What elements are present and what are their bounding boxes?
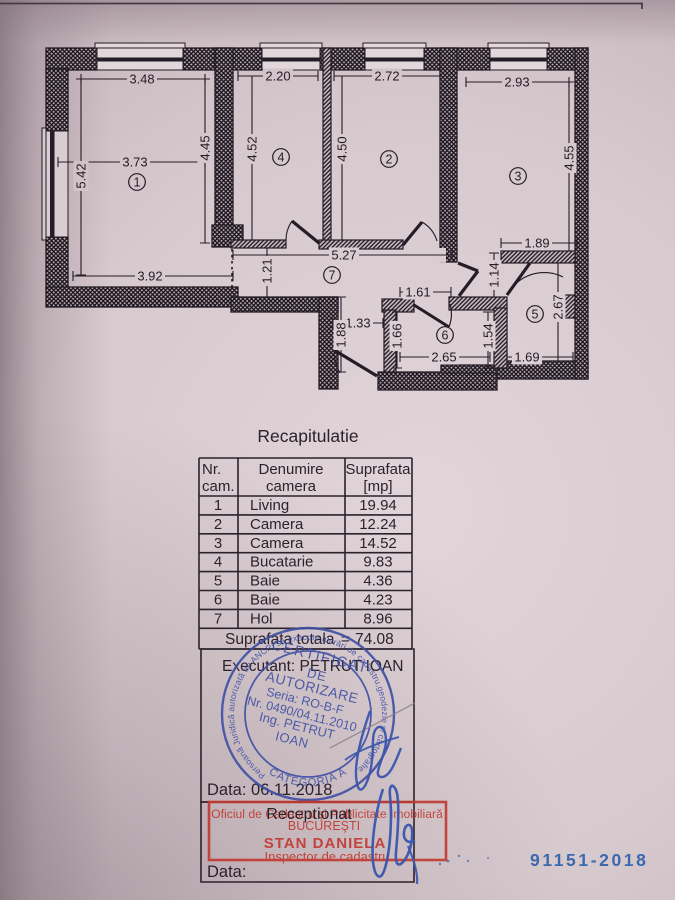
svg-text:3.48: 3.48 (129, 72, 154, 87)
svg-text:5.42: 5.42 (74, 163, 89, 188)
svg-text:4.45: 4.45 (198, 135, 213, 160)
svg-text:4.55: 4.55 (562, 145, 577, 170)
svg-text:1.54: 1.54 (481, 323, 496, 348)
svg-text:4.23: 4.23 (363, 592, 392, 609)
svg-text:12.24: 12.24 (359, 516, 397, 533)
svg-text:3: 3 (214, 535, 222, 552)
svg-text:1.21: 1.21 (260, 258, 275, 283)
svg-text:5: 5 (532, 307, 539, 321)
svg-text:19.94: 19.94 (359, 497, 397, 514)
svg-text:7: 7 (329, 268, 336, 282)
svg-text:3: 3 (515, 169, 522, 183)
svg-text:4: 4 (214, 554, 222, 571)
svg-text:2.72: 2.72 (374, 69, 399, 84)
svg-text:6: 6 (214, 592, 222, 609)
svg-text:Baie: Baie (250, 592, 280, 609)
svg-text:2: 2 (214, 516, 222, 533)
svg-text:6: 6 (442, 328, 449, 342)
svg-text:1.66: 1.66 (390, 323, 405, 348)
svg-text:1: 1 (214, 497, 222, 514)
svg-text:3.92: 3.92 (137, 269, 162, 284)
svg-text:Nr.: Nr. (202, 461, 221, 478)
svg-text:3.73: 3.73 (122, 155, 147, 170)
svg-text:Receptionat: Receptionat (266, 806, 352, 823)
svg-text:5: 5 (214, 573, 222, 590)
svg-text:Denumire: Denumire (258, 461, 323, 478)
svg-text:1: 1 (134, 175, 141, 189)
svg-text:Camera: Camera (250, 516, 304, 533)
svg-text:2.67: 2.67 (551, 294, 566, 319)
svg-text:4: 4 (278, 150, 285, 164)
svg-text:14.52: 14.52 (359, 535, 397, 552)
svg-text:4.52: 4.52 (245, 136, 260, 161)
svg-text:5.27: 5.27 (331, 248, 356, 263)
svg-text:Camera: Camera (250, 535, 304, 552)
svg-text:Recapitulatie: Recapitulatie (257, 426, 358, 446)
svg-text:1.33: 1.33 (345, 316, 370, 331)
svg-text:1.89: 1.89 (524, 236, 549, 251)
svg-text:Inspector de cadastru: Inspector de cadastru (264, 849, 389, 864)
svg-text:2.65: 2.65 (431, 350, 456, 365)
svg-text:2.20: 2.20 (265, 69, 290, 84)
svg-text:camera: camera (266, 478, 317, 495)
svg-text:9.83: 9.83 (363, 554, 392, 571)
svg-text:Hol: Hol (250, 610, 273, 627)
svg-text:2: 2 (386, 152, 393, 166)
svg-text:Living: Living (250, 497, 289, 514)
svg-text:8.96: 8.96 (363, 610, 392, 627)
svg-text:Suprafata: Suprafata (345, 461, 411, 478)
svg-text:1.69: 1.69 (514, 350, 539, 365)
svg-text:1.61: 1.61 (405, 285, 430, 300)
svg-text:7: 7 (214, 610, 222, 627)
svg-text:cam.: cam. (202, 478, 235, 495)
svg-text:Baie: Baie (250, 573, 280, 590)
svg-text:4.36: 4.36 (363, 573, 392, 590)
svg-text:[mp]: [mp] (363, 478, 392, 495)
svg-text:1.14: 1.14 (487, 262, 502, 287)
svg-text:2.93: 2.93 (504, 75, 529, 90)
svg-text:Bucatarie: Bucatarie (250, 554, 313, 571)
svg-text:Data:: Data: (207, 863, 246, 881)
svg-text:91151-2018: 91151-2018 (530, 850, 648, 870)
svg-text:4.50: 4.50 (335, 136, 350, 161)
svg-text:1.88: 1.88 (334, 322, 349, 347)
